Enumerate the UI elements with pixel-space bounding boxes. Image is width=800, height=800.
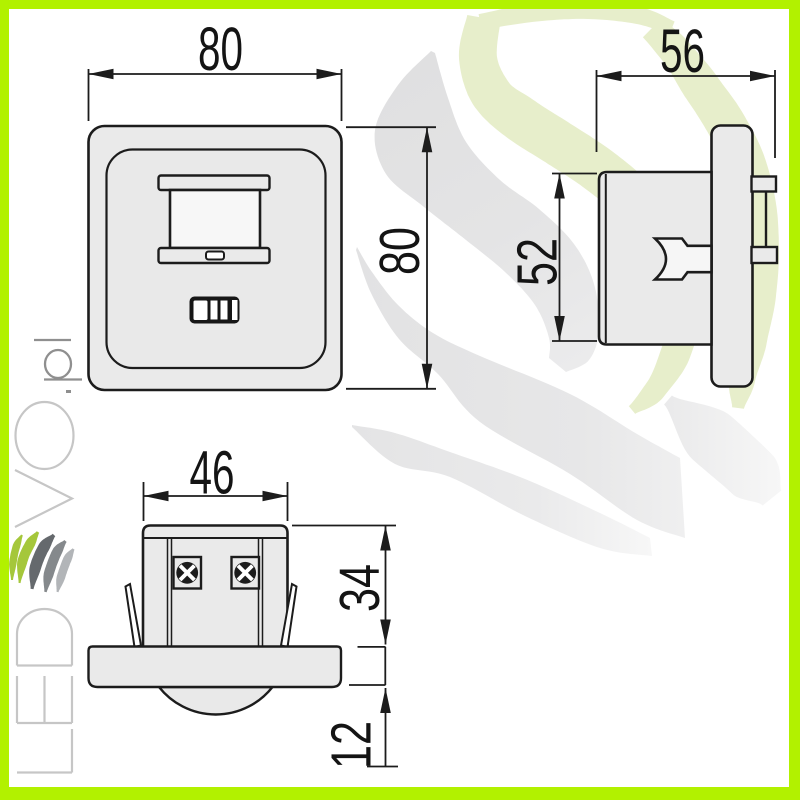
svg-text:34: 34 bbox=[328, 564, 392, 612]
svg-text:52: 52 bbox=[506, 238, 570, 286]
svg-text:12: 12 bbox=[320, 721, 384, 769]
svg-text:56: 56 bbox=[660, 17, 705, 85]
svg-text:46: 46 bbox=[190, 438, 235, 506]
svg-text:80: 80 bbox=[368, 227, 432, 275]
svg-text:80: 80 bbox=[198, 15, 243, 83]
